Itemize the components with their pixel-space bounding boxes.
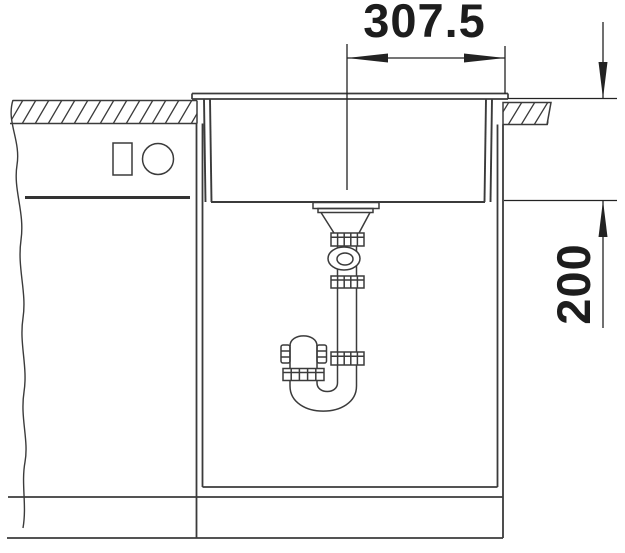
countertop-right-section	[495, 102, 561, 125]
appliance-display-rect	[113, 143, 132, 175]
width-arrow-right	[464, 54, 505, 63]
depth-arrow-down	[599, 62, 608, 99]
base-cabinet	[7, 124, 503, 539]
trap-side-nut-left	[281, 345, 290, 363]
technical-drawing: 307.5 200	[0, 0, 625, 553]
overflow-hose-loop	[328, 247, 360, 270]
sink-cross-section-diagram	[0, 0, 625, 553]
depth-dimension-label: 200	[550, 204, 598, 364]
dimension-width	[347, 44, 505, 190]
sink-basin	[204, 99, 492, 202]
countertop-left-section	[0, 100, 205, 124]
locknut-2	[331, 276, 364, 288]
adjacent-appliance-front	[25, 143, 190, 198]
sink-rim	[192, 94, 508, 100]
siphon-trap	[281, 336, 364, 411]
locknut-4	[283, 369, 324, 381]
drain-funnel	[321, 213, 370, 234]
hatch-pattern-left	[0, 100, 205, 124]
locknut-1	[331, 233, 364, 246]
appliance-knob	[143, 144, 174, 175]
trap-side-nut-right	[317, 345, 327, 363]
width-dimension-label: 307.5	[322, 0, 527, 45]
depth-arrow-up	[599, 201, 608, 238]
trap-cylinder	[290, 336, 317, 369]
width-arrow-left	[347, 54, 388, 63]
drain-flange	[313, 203, 379, 209]
drain-flange-step	[318, 209, 373, 213]
wall-break-line	[11, 100, 26, 528]
drain-assembly	[313, 203, 379, 353]
locknut-3	[331, 352, 364, 365]
drain-tailpipe	[338, 288, 357, 352]
